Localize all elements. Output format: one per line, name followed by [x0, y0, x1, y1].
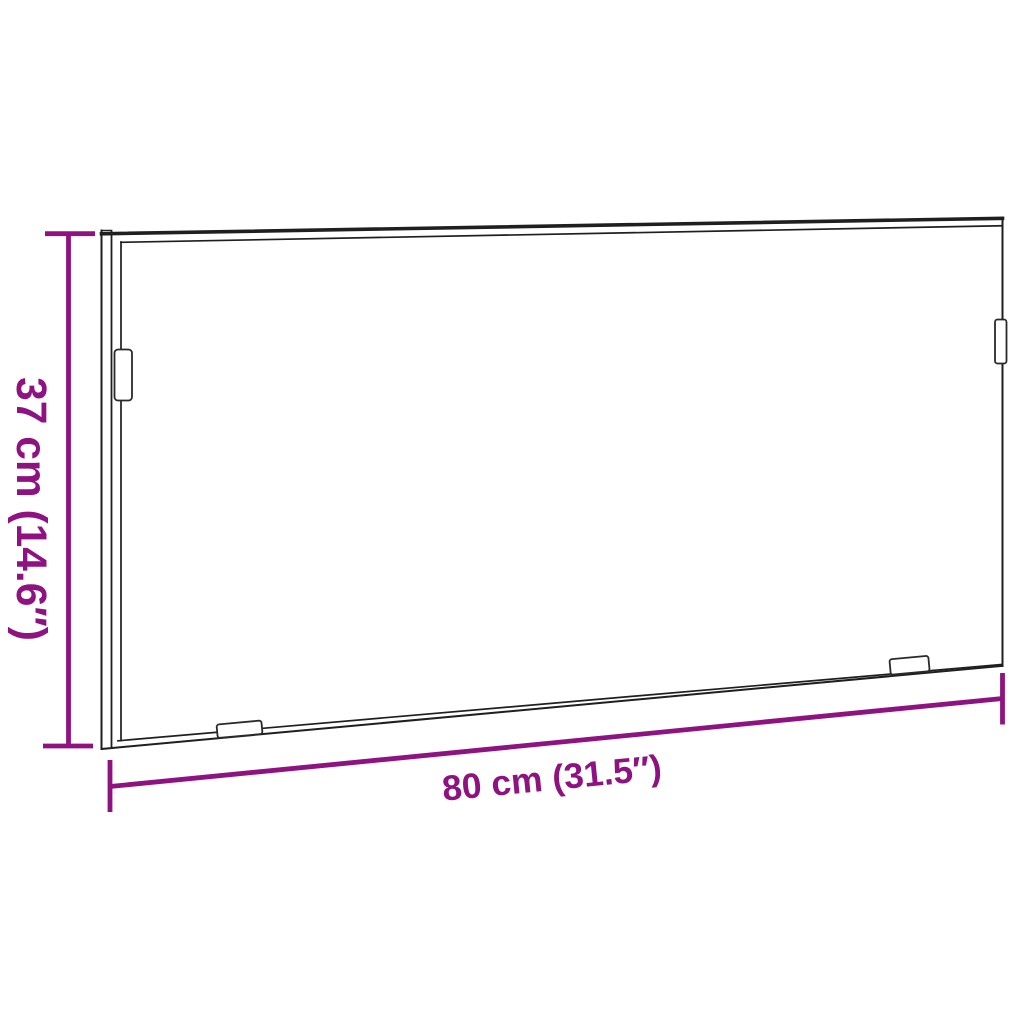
frame-inner-top-edge — [121, 226, 1002, 243]
width-dimension-label: 80 cm (31.5″) — [440, 747, 663, 808]
mirror-frame — [102, 218, 1003, 749]
dimension-diagram: 37 cm (14.6″) 80 cm (31.5″) — [0, 0, 1024, 1024]
bottom-right-mounting-clip — [889, 656, 929, 675]
frame-top-edge — [102, 218, 1003, 234]
right-mounting-clip — [995, 320, 1007, 364]
height-dimension-label: 37 cm (14.6″) — [7, 377, 54, 641]
dimension-diagram-page: 37 cm (14.6″) 80 cm (31.5″) — [0, 0, 1024, 1024]
bottom-left-mounting-clip — [216, 720, 262, 738]
left-mounting-clip — [115, 350, 133, 401]
